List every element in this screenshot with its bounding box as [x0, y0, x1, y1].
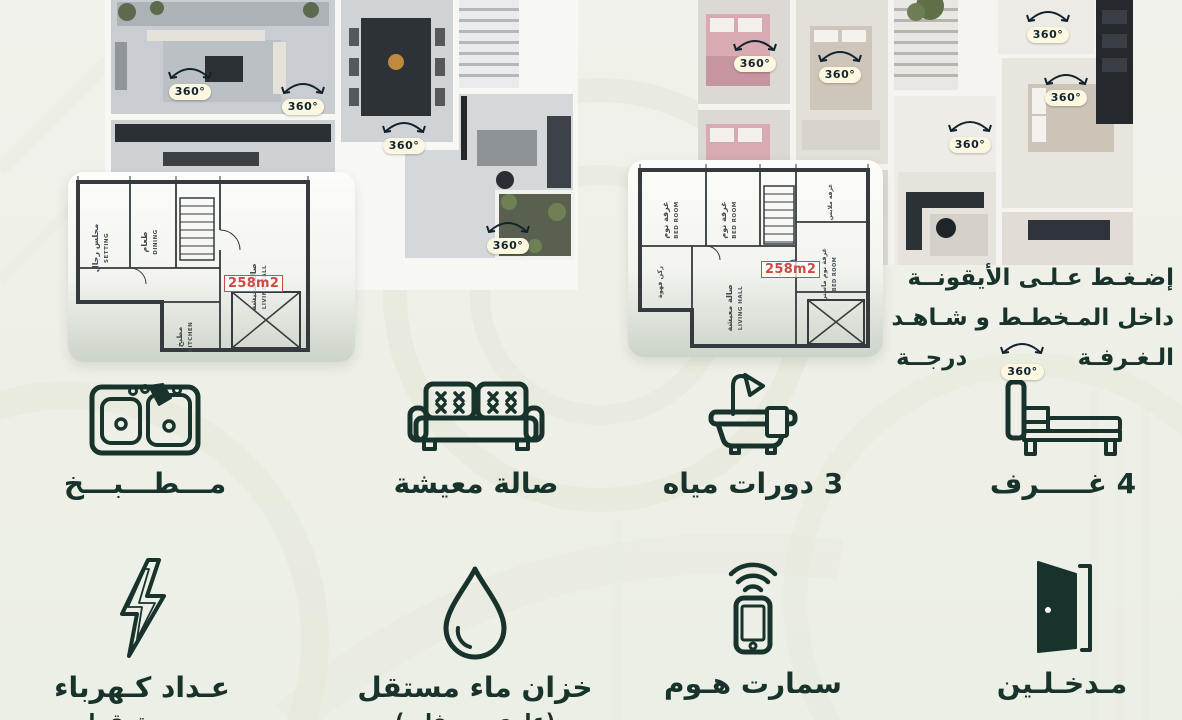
- room-label-en: BED ROOM: [832, 257, 838, 291]
- room-label: غرفة نوم: [719, 201, 728, 238]
- room-label: غرفة نوم: [661, 201, 670, 238]
- feature-sublabel: (علوي و سفلي): [395, 709, 555, 720]
- room-label: ركن قهوة: [656, 266, 664, 298]
- floorplan-drawing-upper: غرفة نوم BED ROOM غرفة نوم BED ROOM غرفة…: [628, 160, 883, 357]
- infographic-canvas: مجلس رجال SETTING طعام DINING صالة معيشة…: [0, 0, 1182, 720]
- badge-360-label: 360°: [169, 84, 211, 100]
- room-label: غرفة نوم ماستر: [820, 248, 828, 301]
- feature-label: خزان ماء مستقل: [357, 671, 592, 704]
- water-drop-icon: [437, 564, 513, 660]
- instruction-line-2: داخل المـخطـط و شـاهـد: [891, 305, 1174, 331]
- room-label-en: BED ROOM: [674, 201, 680, 239]
- room-label: مجلس رجال: [91, 224, 101, 272]
- badge-360[interactable]: 360°: [998, 341, 1046, 381]
- room-label: طعام: [140, 232, 149, 253]
- feature-two-entrances: مـدخـلـين: [902, 556, 1182, 700]
- badge-360-label: 360°: [282, 99, 324, 115]
- feature-bathrooms: 3 دورات مياه: [593, 366, 913, 500]
- badge-360[interactable]: 360°: [946, 119, 994, 153]
- feature-label: عـداد كـهرباء: [54, 671, 230, 704]
- badge-360-label: 360°: [1001, 364, 1043, 380]
- badge-360[interactable]: 360°: [166, 66, 214, 100]
- feature-label: 3 دورات مياه: [663, 467, 843, 500]
- badge-360[interactable]: 360°: [380, 120, 428, 154]
- door-icon: [1024, 560, 1100, 656]
- room-label-en: SETTING: [104, 233, 110, 263]
- smartphone-wifi-icon: [711, 554, 795, 656]
- feature-smart-home: سمارت هـوم: [593, 552, 913, 700]
- feature-electricity-meter: عـداد كـهرباء مــســتــقــل: [0, 554, 302, 720]
- badge-360-label: 360°: [1045, 90, 1087, 106]
- feature-label: سمارت هـوم: [664, 667, 842, 700]
- area-label: 258m2: [224, 275, 283, 292]
- badge-360-label: 360°: [819, 67, 861, 83]
- room-label-en: BED ROOM: [732, 201, 738, 239]
- room-label-en: LIVING HALL: [738, 286, 744, 330]
- badge-360[interactable]: 360°: [279, 81, 327, 115]
- badge-360-label: 360°: [383, 138, 425, 154]
- badge-360-label: 360°: [734, 56, 776, 72]
- feature-sublabel: مــســتــقــل: [78, 709, 206, 720]
- feature-label: مـــطـــبـــخ: [64, 467, 226, 500]
- instruction-line-3-pre: الـغـرفـة: [1078, 345, 1174, 371]
- instruction-line-3-post: درجــة: [896, 345, 967, 371]
- feature-kitchen: مـــطـــبـــخ: [0, 370, 305, 500]
- badge-360[interactable]: 360°: [1024, 9, 1072, 43]
- floorplan-drawing-ground: مجلس رجال SETTING طعام DINING صالة معيشة…: [68, 172, 355, 362]
- badge-360[interactable]: 360°: [731, 38, 779, 72]
- feature-label: 4 غـــــرف: [990, 467, 1136, 500]
- badge-360[interactable]: 360°: [484, 220, 532, 254]
- badge-360-label: 360°: [487, 238, 529, 254]
- lightning-icon: [110, 556, 174, 660]
- room-label-en: DINING: [153, 229, 159, 254]
- feature-bedrooms: 4 غـــــرف: [903, 370, 1182, 500]
- badge-360-label: 360°: [1027, 27, 1069, 43]
- room-label: غرفة ملابس: [827, 184, 834, 221]
- area-label: 258m2: [761, 261, 820, 278]
- instruction-line-1: إضـغـط عـلـى الأيقونــة: [908, 265, 1174, 291]
- feature-label: صالة معيشة: [394, 467, 559, 500]
- badge-360[interactable]: 360°: [1042, 72, 1090, 106]
- bathtub-icon: [705, 366, 801, 456]
- room-label: مطبخ: [175, 326, 184, 347]
- badge-360[interactable]: 360°: [816, 49, 864, 83]
- sofa-icon: [406, 380, 546, 456]
- feature-water-tank: خزان ماء مستقل (علوي و سفلي): [315, 554, 635, 720]
- badge-360-label: 360°: [949, 137, 991, 153]
- bed-icon: [998, 380, 1128, 456]
- room-label: صالة معيشة: [725, 284, 734, 331]
- feature-label: مـدخـلـين: [997, 667, 1127, 700]
- room-label-en: KITCHEN: [188, 322, 194, 353]
- feature-living-hall: صالة معيشة: [316, 370, 636, 500]
- instruction-text: إضـغـط عـلـى الأيقونــة داخل المـخطـط و …: [896, 258, 1174, 378]
- sink-icon: [89, 378, 201, 456]
